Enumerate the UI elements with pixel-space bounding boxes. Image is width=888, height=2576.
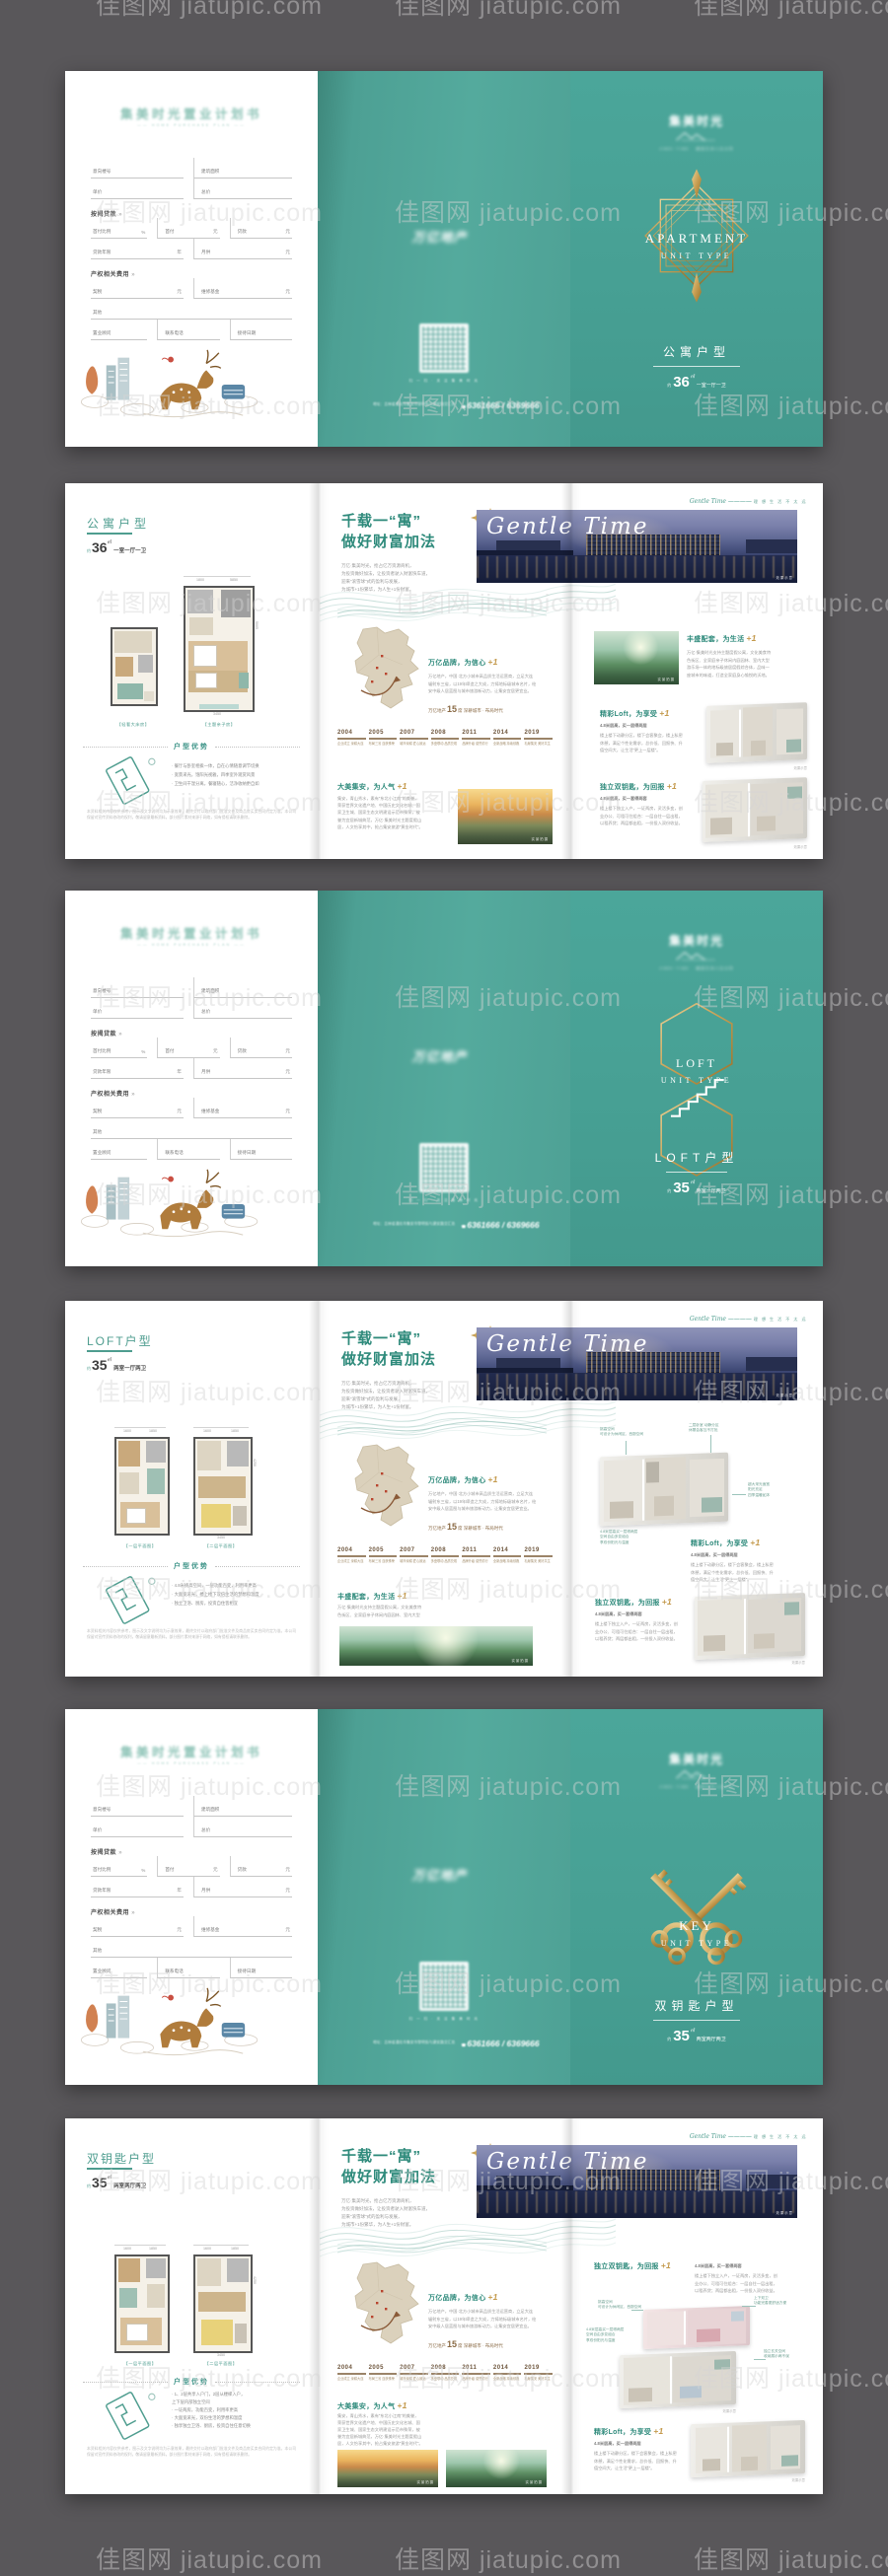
section-heading: 大美集安，为人气+1 [337, 781, 407, 792]
e1: KEY [570, 1918, 823, 1934]
dimension-label: 4250 [253, 2276, 257, 2284]
span-el: 席 深耕城市 · 布局时代 [458, 2343, 503, 2348]
y: 2004 [337, 2365, 366, 2371]
planbook-title: 集美时光置业计划书 [65, 104, 318, 122]
y: 2005 [369, 730, 398, 736]
span-el: 契税 [93, 1109, 102, 1114]
n: 布局三省 连获殊荣 [369, 1559, 398, 1564]
floorplan-page: LOFT户型 约35㎡两室一厅两卫 16001850 16001850 4250… [65, 1301, 318, 1677]
stock-preview-page: { "watermark":{"text":"佳图网 jiatupic.com"… [0, 0, 888, 2568]
span-el: 其他 [93, 310, 102, 316]
span-el: 联系电话 [165, 1968, 183, 1974]
gentle-time-panorama: Gentle Time 效果示意 [477, 510, 797, 583]
l2: JIMEI TIME · 峰层艺术人文大宅 [570, 147, 823, 152]
y: 2005 [369, 2365, 398, 2371]
y: 2004 [337, 1547, 366, 1553]
path-el [196, 1189, 213, 1208]
span-el: Gentle Time [690, 2133, 726, 2140]
span-el: 首付比例 [93, 1048, 111, 1054]
circle-el [173, 1210, 176, 1213]
line: 辐射东三省，以19年缔造之大成，力铸地标级城市名片，绘 [428, 680, 555, 688]
i-el: 做好财富加法 [341, 2167, 436, 2187]
plan-caption: 【主题亲子房】 [182, 722, 257, 728]
n: 全新战略 持续领跑 [493, 742, 522, 747]
g-el [639, 1862, 743, 1966]
sfx: 元 [285, 250, 290, 255]
ptag: 实景拍摄 [511, 1658, 529, 1663]
span-el: 大美集安，为人气 [337, 784, 395, 791]
phone-icon: ☎ [461, 404, 466, 409]
span-el: 首付比例 [93, 229, 111, 235]
plus: +1 [667, 781, 677, 791]
timeline-item: 2004企业成立 深耕大连 [337, 2365, 366, 2382]
u: ㎡ [108, 2175, 112, 2180]
brand-stat: 万亿地产15席 深耕城市 · 布局时代 [428, 2339, 503, 2349]
form-row: 意向楼号建筑面积 [91, 1796, 292, 1817]
span-el: Gentle Time [690, 498, 726, 505]
plus: +1 [487, 657, 497, 667]
dots [215, 2382, 300, 2383]
rect-el [376, 667, 378, 669]
path-el [162, 358, 168, 359]
l2: JIMEI TIME · 峰层艺术人文大宅 [570, 966, 823, 971]
g-el [106, 756, 149, 805]
span-el: 总价 [201, 1009, 210, 1015]
y: 2019 [524, 2365, 553, 2371]
u: ㎡ [108, 1357, 112, 1362]
i-el: 万亿·集美时光，抢占亿万资源商机， [341, 562, 430, 570]
span-el: 6361666 / 6369666 [467, 1220, 539, 1230]
gentle-time-script: Gentle Time [486, 1331, 648, 1357]
span-el: 置业顾问 [93, 1968, 111, 1974]
plus: +1 [659, 708, 669, 718]
u: ㎡ [691, 374, 696, 379]
line: · 大面宽采光，楼上楼下双倍生活的梦想和温度 [172, 1590, 300, 1599]
span-el: 维修基金 [201, 289, 219, 295]
rm: 一室一厅一卫 [113, 548, 146, 554]
purchase-plan-form: 意向楼号建筑面积 单价总价 按揭贷款 » 首付比例%首付元贷款元 贷款年限年月供… [91, 977, 292, 1160]
ptag: 实景拍摄 [531, 836, 549, 841]
rect-el [117, 1996, 129, 2039]
cover-unit-title: 双钥匙户型 约35㎡ 两室两厅两卫 [570, 1997, 823, 2044]
project-logo: 集美时光 JIMEI TIME · 峰层艺术人文大宅 [570, 1751, 823, 1790]
form-row: 契税元维修基金元 [91, 1916, 292, 1937]
path-el [355, 2262, 418, 2343]
n: 城市深耕 匠心致远 [400, 742, 428, 747]
path-el [115, 767, 136, 791]
rect-el [371, 1498, 373, 1500]
path-el [692, 273, 702, 303]
field-maintenance-fund: 维修基金元 [193, 1098, 292, 1118]
timeline-item: 2019礼献集安 美好共生 [524, 2365, 553, 2382]
section-paragraph: 万亿地产，中国·北方小城市高品质生活运营商，立足大连辐射东三省，以19年缔造之大… [428, 673, 555, 695]
field-consultant: 置业顾问 [91, 1958, 147, 1978]
rect-el [371, 680, 373, 682]
path-el [160, 384, 201, 410]
path-el [206, 1170, 208, 1183]
span-el: 意向楼号 [93, 988, 111, 994]
b-el: 35 [673, 2028, 690, 2044]
bar [337, 2373, 366, 2375]
circle-el [187, 391, 190, 394]
cover-middle-panel: 万亿地产 扫 一 扫 · 关 注 集 美 时 光 地址：吉林省通化市集安市黎明街… [318, 1709, 570, 2085]
section-heading: 精彩Loft，为享受+1 [691, 1538, 761, 1548]
field-loan: 贷款元 [230, 218, 292, 239]
i-el [731, 2311, 744, 2322]
dualkey-content-spread: 双钥匙户型 约35㎡两室两厅两卫 16001850 16001850 4250 … [65, 2118, 823, 2494]
brand-stat: 万亿地产15席 深耕城市 · 布局时代 [428, 1522, 503, 1532]
ptag: 效果示意 [776, 575, 793, 580]
s-el: 1600 [193, 1427, 221, 1433]
dualkey-interior-cutaway [703, 777, 807, 842]
deer-illustration [77, 1164, 270, 1241]
i-el [201, 1504, 231, 1528]
y: 2007 [400, 2365, 428, 2371]
path-el [320, 1425, 616, 1439]
form-row: 贷款年限年月供元 [91, 1877, 292, 1897]
aline [626, 1441, 627, 1455]
area-line: 约35㎡两室两厅两卫 [87, 2175, 146, 2190]
i-el [741, 2456, 758, 2470]
g-el [320, 584, 616, 621]
aline [754, 2359, 766, 2360]
sfx: % [141, 230, 145, 235]
field-area: 建筑面积 [193, 1796, 292, 1817]
y: 2007 [400, 1547, 428, 1553]
cn: 理 想 生 活 不 太 远 [754, 1317, 807, 1322]
i-el [477, 1374, 797, 1395]
ab: 约 [87, 2183, 91, 2188]
unit-type-name: 公寓户型 [570, 343, 823, 360]
line: 以租养贷；两层都出租，一份投入双份收益。 [600, 820, 703, 827]
rect-el [376, 2302, 378, 2304]
path-el [676, 133, 704, 141]
n: 企业成立 深耕大连 [337, 742, 366, 747]
dots [215, 747, 300, 748]
i-el [654, 1496, 675, 1516]
line: 安中级人居蓝图与城市旅游新动力，让集安宜居更宜业。 [428, 1505, 555, 1513]
i-el [647, 2312, 686, 2346]
i-el [119, 2288, 137, 2308]
form-row: 置业顾问联系电话接待日期 [91, 320, 292, 340]
line: 居，人文怡享其中，抢占集安旅游“黄金时代”。 [337, 2440, 545, 2447]
span-el: 首付 [165, 1048, 174, 1054]
aline [710, 1435, 711, 1453]
plan-caption: 【二层平面图】 [185, 1543, 257, 1549]
at: 户型优势 [174, 742, 209, 751]
annotation: 独立玄关空间 收纳展示两不误 [764, 2349, 807, 2360]
divider [653, 366, 740, 367]
unit-sketch-icon [99, 753, 162, 805]
i-el [189, 617, 213, 635]
line: 业办公、可租可住组合：一层自住一层出租， [695, 2280, 805, 2288]
section-heading: 精彩Loft，为享受+1 [600, 708, 670, 719]
photo-caption: 效果示意 [703, 844, 807, 849]
s-el: 1800 [184, 576, 217, 582]
span-el: 首付 [165, 1867, 174, 1873]
y: 2011 [462, 2365, 490, 2371]
cover-front-panel: 集美时光 JIMEI TIME · 峰层艺术人文大宅 [570, 71, 823, 447]
dimension-label: 4250 [253, 1459, 257, 1467]
field-other: 其他 [91, 1118, 292, 1139]
span-el: 月供 [201, 1069, 210, 1075]
sfx: 元 [177, 289, 182, 295]
lake-photo: 实景拍摄 [594, 631, 679, 684]
i-el [195, 673, 217, 688]
span-el: 接待日期 [238, 330, 256, 336]
n: 多盘联动 品质兑现 [431, 742, 460, 747]
circle-el [187, 1210, 190, 1213]
b-el: 35 [673, 1180, 690, 1196]
circle-el [173, 391, 176, 394]
section-paragraph: 楼上楼下动静分区，楼下会客聚会，楼上私密休憩，满足个性化需求，总价低、回报快、升… [594, 2450, 685, 2472]
field-downpay: 首付元 [157, 218, 219, 239]
i-el [703, 2459, 721, 2471]
path-el [692, 169, 702, 198]
path-el [206, 1988, 208, 2002]
i-el [126, 1508, 146, 1524]
sfx: 元 [285, 289, 290, 295]
bar [400, 2373, 428, 2375]
section-heading: 精彩Loft，为享受+1 [594, 2426, 664, 2437]
s-el: 1600 [114, 1427, 140, 1433]
section-heading: 独立双钥匙，为回报+1 [600, 781, 677, 792]
address-text: 地址：吉林省通化市集安市黎明街与建安路交汇处 [348, 2040, 455, 2046]
advantage-bullets: · 餐厅与卧室相挨一体，自在心情随意调节切换· 宽景采光，饱阳光视雅，四季室外观… [172, 761, 300, 788]
span-el: 维修基金 [201, 1109, 219, 1114]
i-el [781, 2455, 798, 2467]
ellipse-el [81, 396, 108, 408]
span-el: 月供 [201, 250, 210, 255]
unit-area-line: 约35㎡ 两室两厅两卫 [570, 2028, 823, 2044]
path-el [115, 1587, 136, 1610]
s-el: 1850 [140, 2245, 166, 2251]
i-el [784, 1602, 800, 1614]
field-building-no: 意向楼号 [91, 158, 184, 179]
line: 游乐场一体的地标级旅居度假综合体，品味一 [687, 664, 805, 672]
cover-unit-title: 公寓户型 约36㎡ 一室一厅一卫 [570, 343, 823, 391]
sfx: 元 [285, 1109, 290, 1114]
line: · 宽景采光，饱阳光视雅，四季室外观赏风景 [172, 770, 300, 779]
contact-line: 地址：吉林省通化市集安市黎明街与建安路交汇处☎6361666 / 6369666 [330, 2039, 558, 2048]
field-building-no: 意向楼号 [91, 1796, 184, 1817]
b-el: 15 [447, 1522, 457, 1532]
i-el [746, 1357, 797, 1372]
ptag: 效果示意 [776, 1393, 793, 1397]
i-el [187, 590, 213, 613]
mountain-icon [668, 1768, 725, 1780]
at: 户型优势 [174, 2377, 209, 2387]
span-el: 贷款 [238, 1048, 247, 1054]
n: 礼献集安 美好共生 [524, 742, 553, 747]
page-title: 双钥匙户型 [87, 2150, 156, 2167]
cover-front-panel: 集美时光 JIMEI TIME · 峰层艺术人文大宅 [570, 1709, 823, 2085]
e2: UNIT TYPE [570, 251, 823, 260]
span-el: 接待日期 [238, 1150, 256, 1156]
y: 2014 [493, 1547, 522, 1553]
dimension-labels: 16001850 [193, 1427, 249, 1433]
path-el [676, 953, 704, 961]
annotation: 4.8米层高买一层得两层 空间自由多变组合 享双份阳光与温度 [600, 1530, 669, 1545]
span-el: 万亿品牌，为信心 [428, 2295, 485, 2302]
span-el: 精彩Loft，为享受 [594, 2429, 651, 2436]
path-el [355, 627, 418, 708]
form-row: 贷款年限年月供元 [91, 1058, 292, 1079]
plus: +1 [661, 2260, 671, 2270]
headline: 千载一“寓”做好财富加法 [341, 1328, 436, 1370]
deer-illustration [77, 344, 270, 421]
ptag: 实景拍摄 [657, 677, 675, 681]
e2: UNIT TYPE [570, 1076, 823, 1085]
bar [400, 1555, 428, 1557]
line: 誉为宜居新城典范，万亿·集美时光主题度假山 [337, 817, 452, 823]
plan-caption: 【二层平面图】 [185, 2361, 257, 2367]
n: 品牌升级 载誉前行 [462, 742, 490, 747]
line: · 独享独立卫浴、厨房，投资自住任意切换 [172, 2422, 300, 2430]
span-el: 贷款年限 [93, 1069, 111, 1075]
field-downpay: 首付元 [157, 1038, 219, 1058]
ab: 约 [667, 383, 671, 388]
i-el [147, 2284, 165, 2308]
plus: +1 [662, 1597, 672, 1607]
cover-unit-title: LOFT户型 约35㎡ 两室一厅两卫 [570, 1149, 823, 1196]
path-el [676, 1771, 704, 1779]
line: 楼上楼下动静分区，楼下会客聚会，楼上私密 [600, 732, 703, 740]
field-downpay: 首付元 [157, 1856, 219, 1877]
aline [732, 1494, 746, 1495]
plus: +1 [487, 1474, 497, 1484]
path-el [355, 1445, 418, 1526]
unit-sketch-icon [99, 2389, 162, 2440]
i-el [117, 683, 143, 699]
watermark-text: 佳图网 jiatupic.com [395, 0, 622, 22]
photo-caption: 效果示意 [695, 1660, 805, 1665]
plus: +1 [653, 2426, 663, 2436]
section-paragraph: 万亿地产，中国·北方小城市高品质生活运营商，立足大连辐射东三省，以19年缔造之大… [428, 1490, 555, 1513]
span-el: ———— [728, 1316, 752, 1323]
line: 家卫生城、国家生态文明建设示范市殊荣，被 [337, 2426, 545, 2433]
divider [653, 2020, 740, 2021]
cover-english-title: KEYUNIT TYPE [570, 1918, 823, 1948]
span-el: 6361666 / 6369666 [467, 2039, 539, 2048]
region-map [335, 2260, 434, 2351]
watermark-text: 佳图网 jiatupic.com [96, 0, 323, 22]
span-el: 联系电话 [165, 330, 183, 336]
line: 万亿地产，中国·北方小城市高品质生活运营商，立足大连 [428, 2308, 555, 2316]
path-el [210, 1186, 221, 1188]
loft-annotated-cutaway [600, 1453, 728, 1527]
g-el [206, 350, 221, 369]
ptag: 实景拍摄 [416, 2479, 434, 2484]
span-el: 建筑面积 [201, 169, 219, 175]
i-el [197, 1441, 221, 1470]
lake-photo: 实景拍摄 [446, 2450, 547, 2487]
bar [337, 738, 366, 740]
upper-level-cutaway [643, 2306, 750, 2349]
line: 以租养贷；两层都出租，一份投入双份收益。 [695, 2287, 805, 2295]
span-el: 大美集安，为人气 [337, 2403, 395, 2410]
i-el [126, 2324, 148, 2341]
field-building-no: 意向楼号 [91, 977, 184, 998]
cn: 理 想 生 活 不 太 远 [754, 499, 807, 504]
qr-code [419, 1962, 469, 2011]
field-maintenance-fund: 维修基金元 [193, 1916, 292, 1937]
path-el [86, 2004, 98, 2032]
span-el: 万亿地产 [428, 2343, 446, 2348]
watermark-text: 佳图网 jiatupic.com [694, 2540, 888, 2576]
b-el: 35 [92, 1357, 108, 1373]
circle-el [180, 1207, 183, 1210]
field-phone: 联系电话 [157, 1139, 219, 1160]
path-el [196, 2008, 213, 2027]
disclaimer: 本资料相关内容仅供参考，图示及文字说明均为示意效果，最终交付以政府部门批准文件及… [87, 1628, 296, 1640]
bar [524, 1555, 553, 1557]
sfx: 元 [285, 1867, 290, 1873]
gentle-time-caption: Gentle Time ———— 理 想 生 活 不 太 远 [690, 1316, 807, 1323]
i-el [146, 1441, 166, 1463]
n: 全新战略 持续领跑 [493, 1559, 522, 1564]
qr-code [419, 1143, 469, 1192]
field-loan: 贷款元 [230, 1038, 292, 1058]
plus: +1 [397, 2400, 407, 2410]
disclaimer: 本资料相关内容仅供参考，图示及文字说明均为示意效果，最终交付以政府部门批准文件及… [87, 809, 296, 821]
unit-sketch-icon [99, 1573, 162, 1624]
form-row: 单价总价 [91, 179, 292, 199]
dimension-labels: 16001850 [193, 2245, 249, 2251]
field-date: 接待日期 [230, 320, 292, 340]
circle-el [149, 758, 155, 764]
rect-el [106, 1576, 149, 1624]
span-el: 接待日期 [238, 1968, 256, 1974]
floor-plan-small [111, 627, 158, 706]
n: 企业成立 深耕大连 [337, 1559, 366, 1564]
y: 2008 [431, 730, 460, 736]
line: 辐射东三省，以19年缔造之大成，力铸地标级城市名片，绘 [428, 1498, 555, 1506]
sfx: 元 [285, 1888, 290, 1894]
i-el [754, 1633, 774, 1649]
y: 2019 [524, 1547, 553, 1553]
plus: +1 [397, 1591, 407, 1601]
ab: 约 [667, 2037, 671, 2041]
line: 集安，青山秀水，素有“东北小江南”的美誉， [337, 2412, 545, 2419]
circle-el [149, 2394, 155, 2399]
span-el: 精彩Loft，为享受 [691, 1540, 748, 1547]
i-el [144, 691, 154, 701]
line: 休憩，满足个性化需求，总价低、回报快、升 [691, 1569, 805, 1577]
i-el [703, 1635, 725, 1652]
i-el: 万亿·集美时光，抢占亿万资源商机， [341, 2197, 430, 2205]
ellipse-el [81, 1216, 108, 1228]
field-total-price: 总价 [193, 1817, 292, 1837]
field-monthly-pay: 月供元 [193, 1877, 292, 1897]
floor-plan-level1 [114, 1437, 170, 1536]
developer-logo: 万亿地产 [412, 227, 468, 246]
i-el: 千载一“寓” [341, 1328, 436, 1349]
divider [666, 1172, 727, 1173]
loft-interior-cutaway [691, 2420, 805, 2477]
span-el: 首付比例 [93, 1867, 111, 1873]
section-subtitle: 4.8米层高，买一层得两层 [594, 2441, 641, 2447]
ab: 约 [667, 1188, 671, 1193]
qr-caption: 扫 一 扫 · 关 注 集 美 时 光 [318, 2017, 570, 2022]
title-underline [87, 1350, 132, 1352]
g-el [650, 1862, 754, 1966]
field-maintenance-fund: 维修基金元 [193, 278, 292, 299]
rect-el [381, 2290, 383, 2292]
i-el: 做好财富加法 [341, 532, 436, 552]
gentle-time-panorama: Gentle Time 效果示意 [477, 2145, 797, 2218]
project-logo: 集美时光 JIMEI TIME · 峰层艺术人文大宅 [570, 932, 823, 971]
